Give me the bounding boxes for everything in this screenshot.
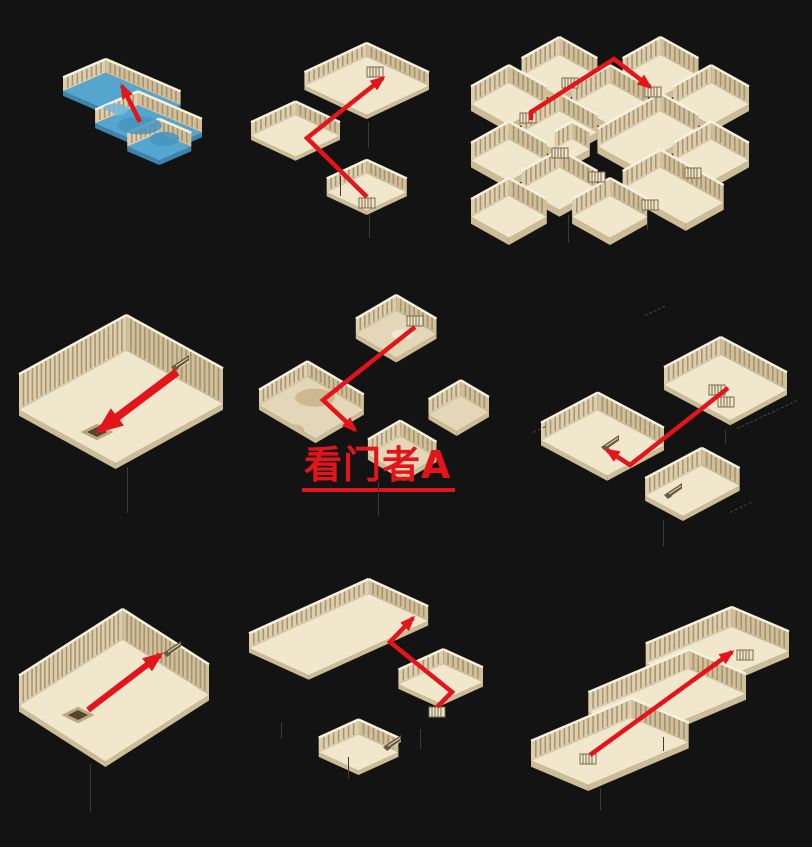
ladder-icon (580, 754, 596, 764)
ladder-icon (367, 67, 383, 77)
ladder-icon (589, 172, 605, 182)
ladder-icon (718, 397, 734, 407)
shadow-artifact (348, 757, 349, 779)
shadow-artifact (663, 737, 664, 751)
shadow-artifact (369, 214, 370, 238)
map-illustration (60, 56, 205, 168)
shadow-artifact (281, 723, 282, 739)
shadow-artifact (725, 430, 726, 444)
ladder-icon (645, 87, 661, 97)
ladder-icon (407, 316, 423, 326)
shadow-artifact (600, 788, 601, 810)
ladder-icon (685, 168, 701, 178)
ladder-icon (520, 113, 536, 123)
map-illustration (246, 576, 486, 778)
map-terraced-halls (538, 334, 790, 524)
shadow-artifact (420, 729, 421, 749)
shadow-artifact (127, 467, 128, 513)
shadow-artifact (663, 520, 664, 546)
map-illustration (538, 334, 790, 524)
ladder-icon (359, 198, 375, 208)
map-illustration (468, 34, 752, 248)
shadow-artifact (647, 210, 648, 230)
dashed-artifact (645, 306, 665, 316)
shadow-artifact (340, 176, 341, 196)
shadow-artifact (90, 764, 91, 812)
ladder-icon (737, 650, 753, 660)
map-illustration (16, 312, 226, 472)
map-illustration (16, 606, 212, 770)
ladder-icon (642, 200, 658, 210)
map-diagonal-corridor (528, 604, 792, 794)
map-illustration (528, 604, 792, 794)
map-long-hall-pit (16, 606, 212, 770)
map-cell-lattice (468, 34, 752, 248)
map-pillared-hall-pit (16, 312, 226, 472)
walkthrough-guide-image: 看门者A (0, 0, 812, 847)
map-flooded-chamber (60, 56, 205, 168)
map-stepped-halls (246, 576, 486, 778)
shadow-artifact (568, 215, 569, 243)
ladder-icon (429, 707, 445, 717)
shadow-artifact (368, 122, 369, 148)
ladder-icon (552, 148, 568, 158)
shadow-artifact (378, 482, 379, 516)
